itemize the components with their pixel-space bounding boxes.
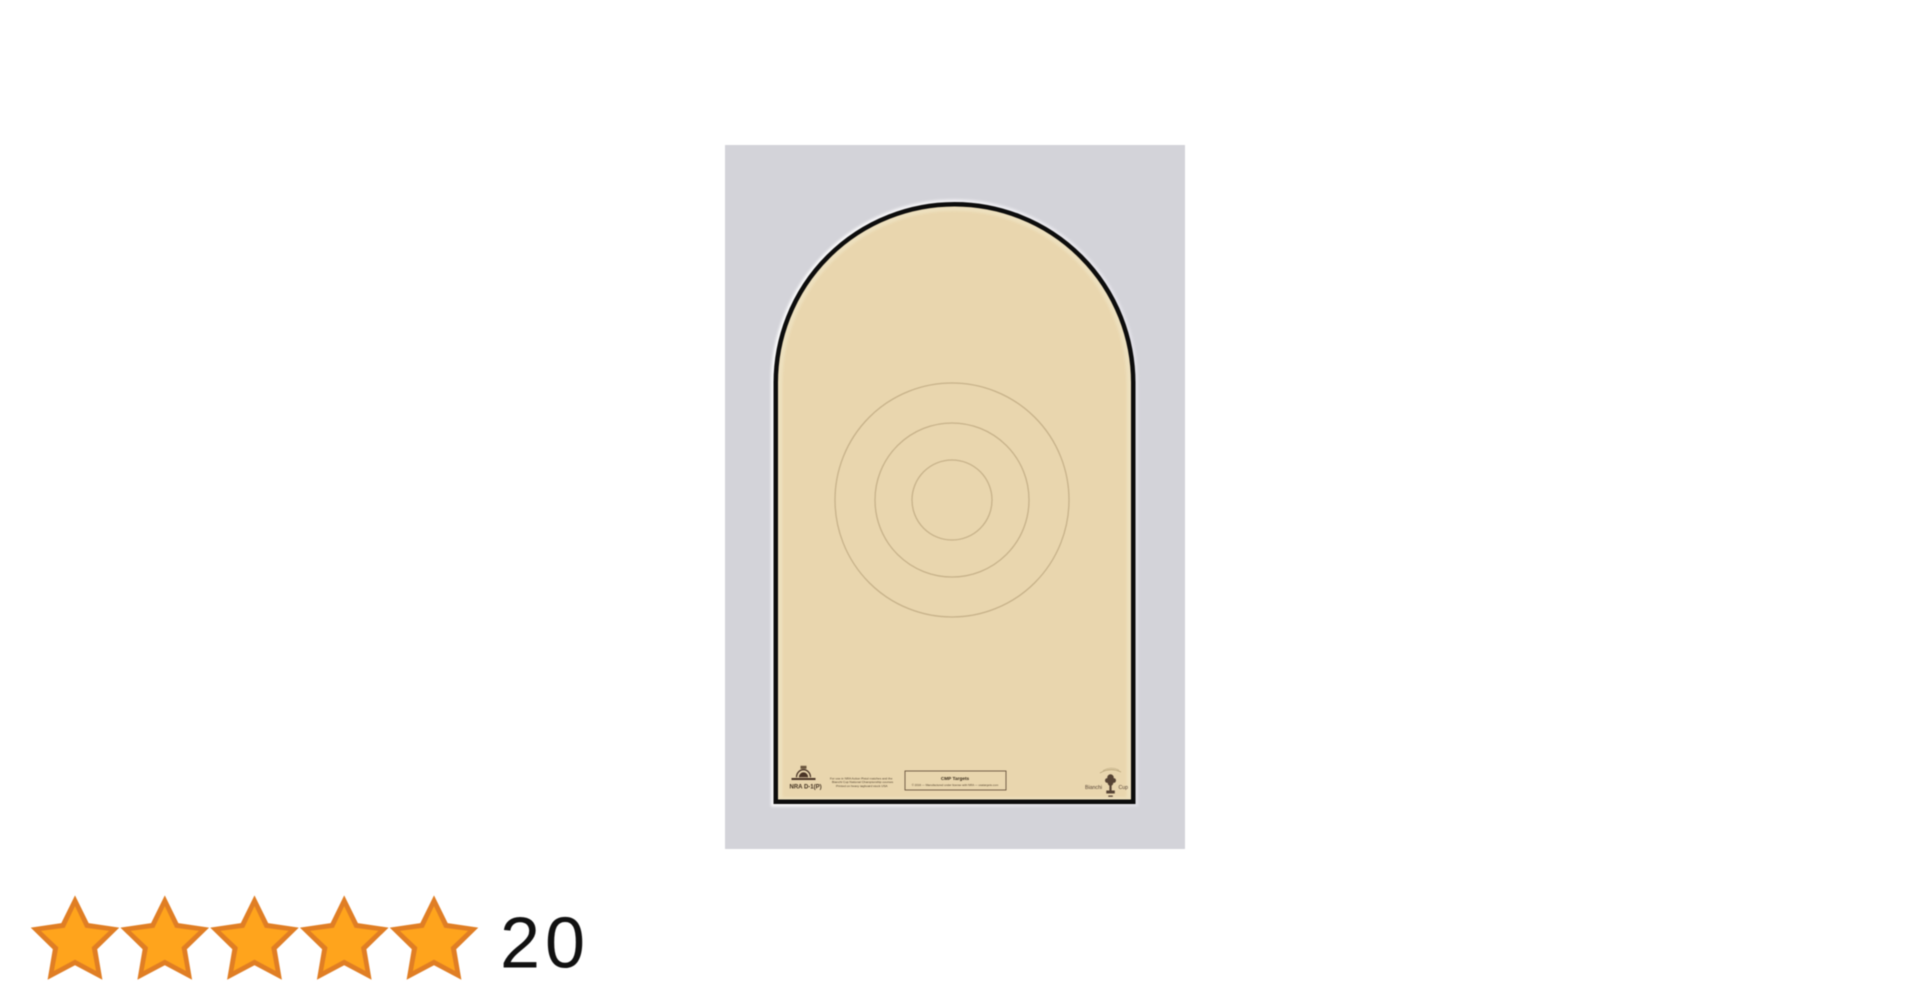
- svg-text:Printed on heavy tagboard stoc: Printed on heavy tagboard stock USA: [836, 784, 889, 788]
- svg-text:Cup: Cup: [1119, 785, 1129, 791]
- svg-text:20: 20: [500, 904, 590, 984]
- svg-text:Bianchi: Bianchi: [1085, 785, 1102, 791]
- svg-text:NRA D-1(P): NRA D-1(P): [790, 784, 822, 790]
- svg-text:© 2016 — Manufactured under: © 2016 — Manufactured under license with…: [912, 783, 999, 787]
- svg-text:CMP Targets: CMP Targets: [941, 776, 970, 781]
